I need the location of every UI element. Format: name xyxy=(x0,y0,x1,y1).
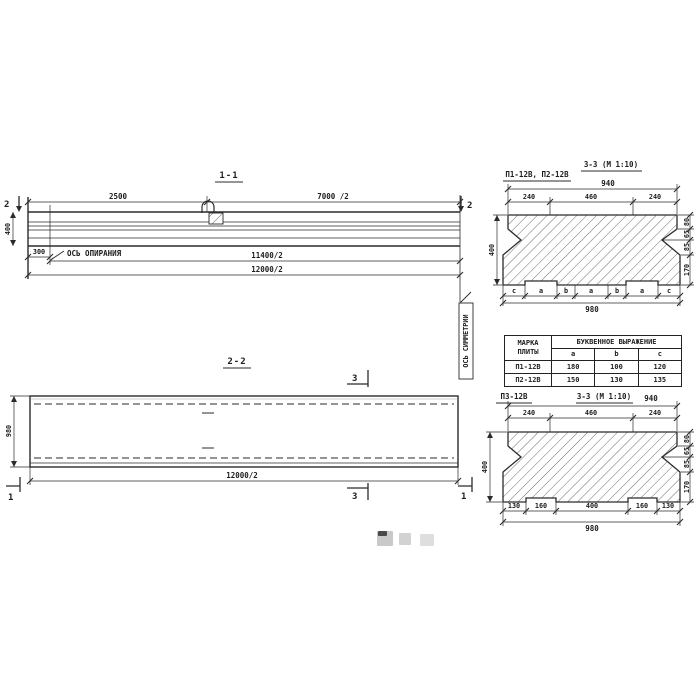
scan-artifact xyxy=(420,534,434,546)
table-row: П1-12В 180 100 120 xyxy=(505,361,682,374)
cs-top-title: 3-3 (М 1:10) xyxy=(584,160,638,169)
section-1-1-view: 1-1 2500 7000 /2 2 2 400 xyxy=(4,171,473,379)
section-1-1-title: 1-1 xyxy=(219,171,238,181)
dim-400-mid: 400 xyxy=(586,502,598,510)
table-cell-mark: П2-12В xyxy=(505,374,552,387)
support-axis-leader xyxy=(52,251,64,259)
table-cell-c: 120 xyxy=(638,361,681,374)
dim-85: 85 xyxy=(683,243,691,251)
letter-b2: b xyxy=(615,287,619,295)
dim-400: 400 xyxy=(488,244,496,256)
cs-top-label: П1-12В, П2-12В xyxy=(505,170,569,179)
dim-300: 300 xyxy=(33,248,45,256)
dim-65: 65 xyxy=(683,230,691,238)
table-cell-b: 100 xyxy=(595,361,638,374)
dim-980-extensions xyxy=(10,396,30,467)
table-col-a: a xyxy=(552,349,595,361)
dim-80: 80 xyxy=(683,218,691,226)
cs-bottom-title: 3-3 (М 1:10) xyxy=(577,392,631,401)
letter-a1: a xyxy=(539,287,543,295)
hidden-edge-dashed-lines xyxy=(34,404,454,458)
dim-130-left: 130 xyxy=(508,502,520,510)
loop-anchor-pad xyxy=(209,213,223,224)
plan-outline xyxy=(30,396,458,467)
dim-170: 170 xyxy=(683,264,691,276)
letter-a2: a xyxy=(589,287,593,295)
cut-marker-1-right-label: 1 xyxy=(461,492,467,502)
cut-marker-1-left-label: 1 xyxy=(8,493,14,503)
dim-240-left: 240 xyxy=(523,409,535,417)
dim-980: 980 xyxy=(5,425,13,437)
dim-160-right: 160 xyxy=(636,502,648,510)
scan-artifact xyxy=(399,533,411,545)
dim-240-right: 240 xyxy=(649,409,661,417)
cut-marker-2-left-label: 2 xyxy=(4,200,10,210)
section-2-2-view: 2-2 980 12000/2 3 3 1 xyxy=(5,357,472,503)
dim-400: 400 xyxy=(481,461,489,473)
dim-240-left: 240 xyxy=(523,193,535,201)
dim-980: 980 xyxy=(585,524,599,533)
slab-section-body xyxy=(503,432,680,502)
dim-400-beam: 400 xyxy=(4,223,12,235)
table-cell-a: 180 xyxy=(552,361,595,374)
cut-marker-3-top-label: 3 xyxy=(352,374,358,384)
dim-85: 85 xyxy=(683,460,691,468)
table-cell-c: 135 xyxy=(638,374,681,387)
dim-80: 80 xyxy=(683,435,691,443)
dim-460: 460 xyxy=(585,193,597,201)
dim-940: 940 xyxy=(601,179,615,188)
cut-marker-2-right-label: 2 xyxy=(467,201,473,211)
dim-170: 170 xyxy=(683,481,691,493)
cut-marker-1-right: 1 xyxy=(458,477,472,502)
letter-b1: b xyxy=(564,287,568,295)
letter-c2: c xyxy=(667,287,671,295)
dim-12000-2: 12000/2 xyxy=(251,265,283,274)
table-cell-b: 130 xyxy=(595,374,638,387)
cut-marker-3-bottom-label: 3 xyxy=(352,492,358,502)
table-col-b: b xyxy=(595,349,638,361)
dim-65: 65 xyxy=(683,447,691,455)
dim-130-right: 130 xyxy=(662,502,674,510)
dim-460: 460 xyxy=(585,409,597,417)
support-axis-label: ОСЬ ОПИРАНИЯ xyxy=(67,249,122,258)
cut-marker-1-left: 1 xyxy=(6,477,20,503)
dim-160-left: 160 xyxy=(535,502,547,510)
table-cell-mark: П1-12В xyxy=(505,361,552,374)
prestress-strand-lines xyxy=(28,222,460,238)
table-header-expression: БУКВЕННОЕ ВЫРАЖЕНИЕ xyxy=(552,336,682,349)
plate-mark-table: МАРКА ПЛИТЫ БУКВЕННОЕ ВЫРАЖЕНИЕ a b c П1… xyxy=(504,335,682,387)
table-header-mark: МАРКА ПЛИТЫ xyxy=(505,336,552,361)
dim-7000-2: 7000 /2 xyxy=(317,192,349,201)
dim-2500: 2500 xyxy=(109,192,128,201)
dim-980: 980 xyxy=(585,305,599,314)
dim-240-right: 240 xyxy=(649,193,661,201)
letter-a3: a xyxy=(640,287,644,295)
dim-12000-2: 12000/2 xyxy=(226,471,258,480)
cross-section-p3: П3-12В 3-3 (М 1:10) 940 240 460 240 130 … xyxy=(481,392,694,533)
scan-artifact xyxy=(378,531,387,536)
table-cell-a: 150 xyxy=(552,374,595,387)
cut-marker-3-top: 3 xyxy=(347,370,368,387)
cut-marker-2-left: 2 xyxy=(4,196,22,212)
slab-section-body xyxy=(503,215,680,285)
dim-940: 940 xyxy=(644,394,658,403)
letter-c1: c xyxy=(512,287,516,295)
dim-11400-2: 11400/2 xyxy=(251,251,283,260)
cross-section-p1-p2: П1-12В, П2-12В 3-3 (М 1:10) 940 240 460 … xyxy=(488,160,694,314)
symmetry-label-leader xyxy=(460,292,471,303)
table-row: П2-12В 150 130 135 xyxy=(505,374,682,387)
cut-marker-3-bottom: 3 xyxy=(347,483,368,502)
table-col-c: c xyxy=(638,349,681,361)
drawing-sheet: 1-1 2500 7000 /2 2 2 400 xyxy=(0,0,700,700)
lifting-loop xyxy=(202,201,214,213)
center-tick-marks xyxy=(202,413,214,448)
cs-bottom-label: П3-12В xyxy=(500,392,528,401)
section-2-2-title: 2-2 xyxy=(227,357,246,367)
symmetry-axis-label: ОСЬ СИММЕТРИИ xyxy=(462,314,470,367)
